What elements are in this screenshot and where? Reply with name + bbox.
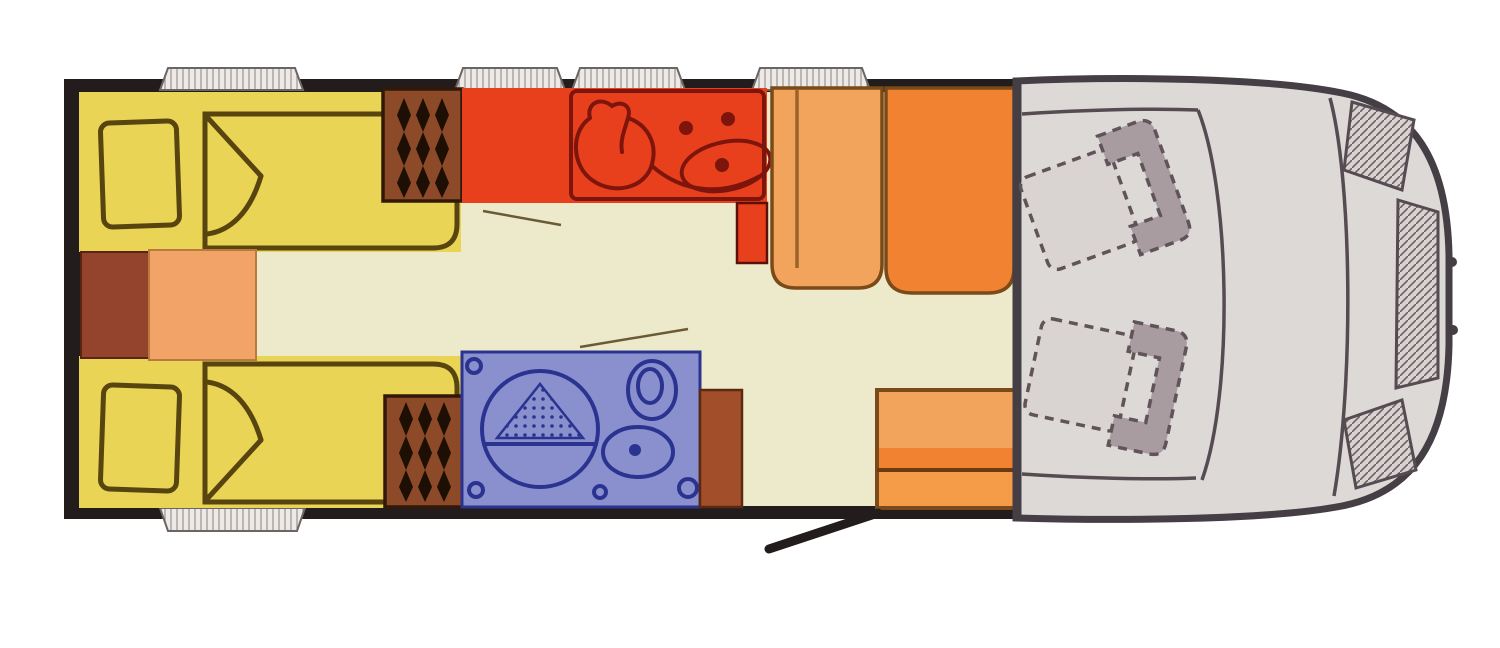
side-bench [877, 390, 1016, 508]
bathroom [462, 352, 700, 507]
hanging-clothes-icon [418, 402, 432, 502]
bedside-sideboard [149, 250, 256, 360]
floorplan-drawing [0, 0, 1500, 648]
bedside-cabinet [81, 252, 149, 358]
window-icon [160, 68, 303, 90]
grille-icon [1396, 200, 1438, 388]
bumper-nub [1447, 257, 1457, 267]
wardrobe-bottom [385, 396, 464, 507]
hanging-clothes-icon [435, 98, 449, 198]
window-icon [455, 68, 565, 90]
dinette [772, 88, 1014, 293]
window-icon [572, 68, 685, 90]
kitchen-return [737, 203, 767, 263]
pillow [100, 385, 180, 492]
bumper-nub [1448, 325, 1458, 335]
cab [1013, 79, 1458, 520]
hanging-clothes-icon [416, 98, 430, 198]
window-icon [160, 508, 305, 531]
wall-rear [64, 79, 80, 519]
toilet-flush-dot [629, 444, 641, 456]
dinette-bench-right [886, 88, 1014, 293]
hanging-clothes-icon [437, 402, 451, 502]
motorhome-floorplan [0, 0, 1500, 648]
bathroom-side-cabinet [700, 390, 742, 507]
hanging-clothes-icon [399, 402, 413, 502]
dinette-bench-left [772, 88, 882, 288]
pillow [100, 121, 180, 228]
hanging-clothes-icon [397, 98, 411, 198]
wardrobe-top [383, 89, 462, 201]
